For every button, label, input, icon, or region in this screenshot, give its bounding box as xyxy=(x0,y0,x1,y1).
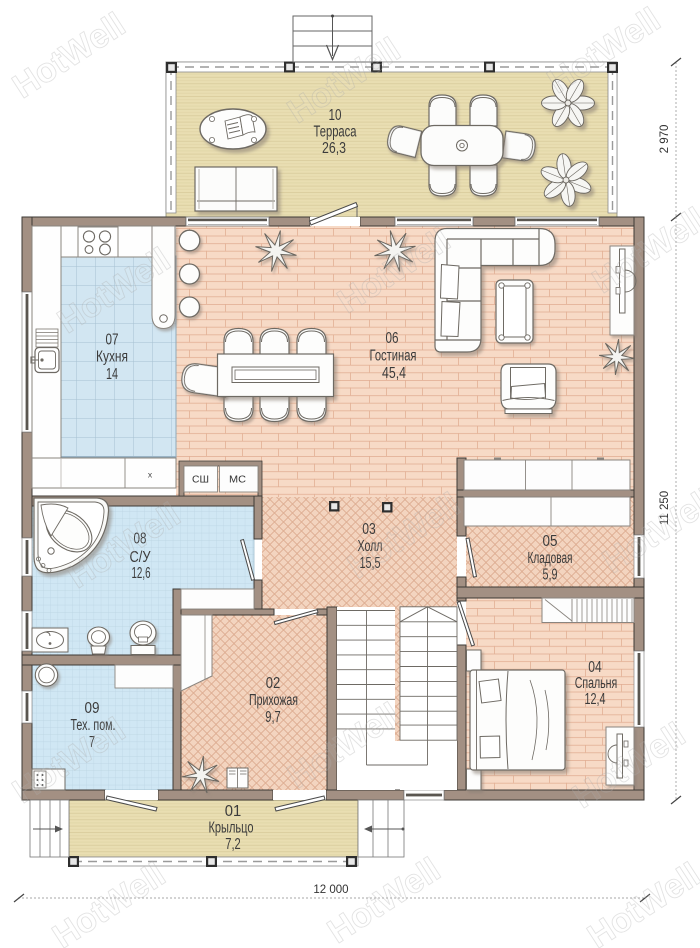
svg-text:05: 05 xyxy=(543,533,558,550)
svg-text:Терраса: Терраса xyxy=(314,124,357,141)
svg-text:04: 04 xyxy=(588,659,602,676)
svg-text:МС: МС xyxy=(229,474,246,486)
svg-text:2 970: 2 970 xyxy=(659,125,671,154)
svg-text:Кладовая: Кладовая xyxy=(528,550,573,567)
svg-text:06: 06 xyxy=(386,330,399,347)
svg-text:7,2: 7,2 xyxy=(225,836,241,853)
svg-text:12,6: 12,6 xyxy=(132,565,151,582)
svg-text:Крыльцо: Крыльцо xyxy=(209,820,254,837)
svg-text:02: 02 xyxy=(266,675,281,692)
svg-text:07: 07 xyxy=(106,332,119,349)
svg-text:Кухня: Кухня xyxy=(96,349,128,366)
svg-text:12 000: 12 000 xyxy=(313,884,348,896)
svg-text:09: 09 xyxy=(85,700,100,717)
svg-text:СШ: СШ xyxy=(192,474,209,486)
svg-text:Прихожая: Прихожая xyxy=(249,692,298,709)
svg-text:9,7: 9,7 xyxy=(265,709,281,726)
svg-text:Спальня: Спальня xyxy=(575,675,618,692)
svg-text:12,4: 12,4 xyxy=(585,691,606,708)
svg-text:Гостиная: Гостиная xyxy=(370,348,417,365)
svg-text:45,4: 45,4 xyxy=(382,365,406,382)
svg-text:14: 14 xyxy=(106,366,118,383)
svg-text:01: 01 xyxy=(225,803,242,820)
svg-text:5,9: 5,9 xyxy=(543,567,558,584)
svg-text:26,3: 26,3 xyxy=(322,140,346,157)
